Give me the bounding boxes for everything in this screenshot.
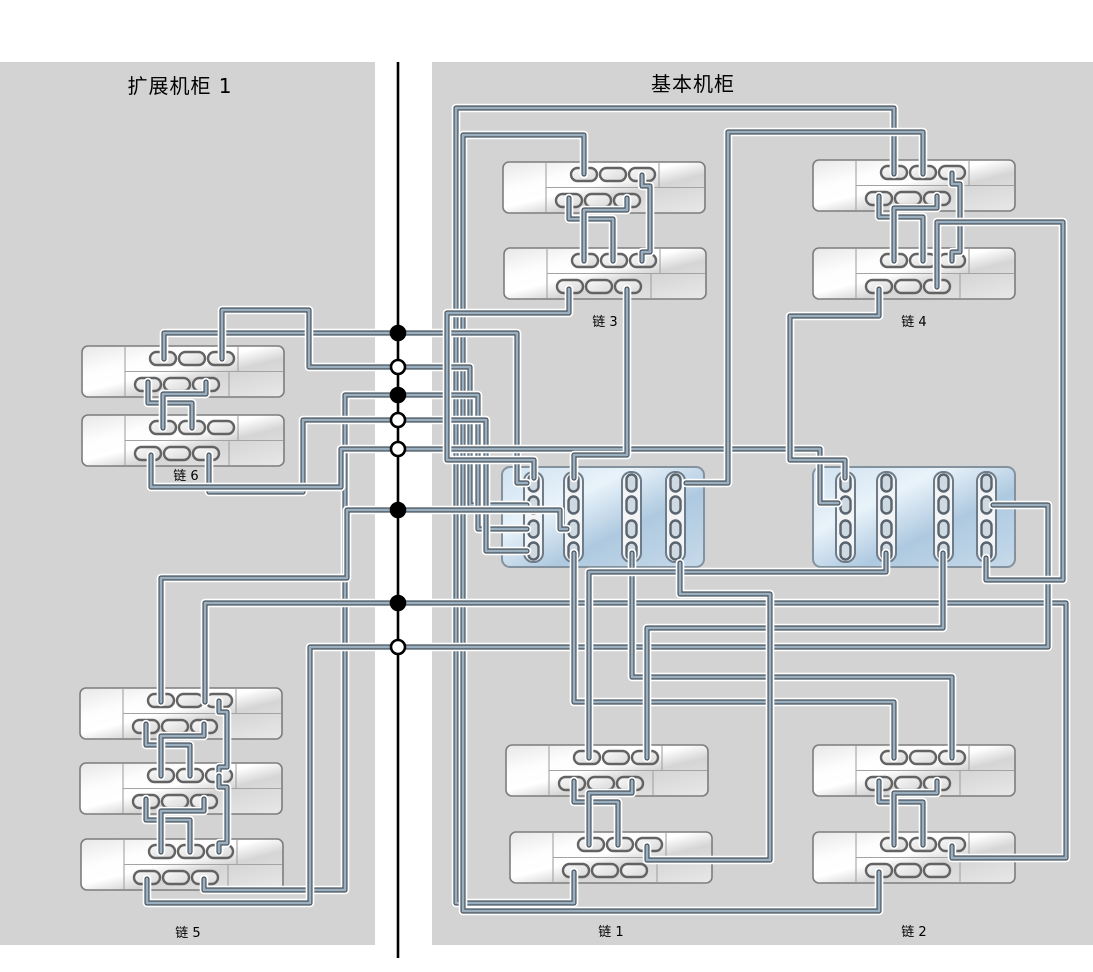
- sas-cable: [574, 553, 894, 758]
- junction-dot-filled: [391, 503, 405, 517]
- shelf-port: [179, 352, 205, 365]
- exp1-shelf-5b: [80, 763, 282, 814]
- chain-5-label: 链 5: [175, 926, 200, 941]
- shelf-port: [895, 280, 921, 293]
- shelf-port: [163, 871, 189, 884]
- hba-port: [841, 543, 851, 560]
- hba-port: [882, 521, 892, 538]
- base-shelf-3a: [503, 162, 705, 213]
- hba-port: [671, 521, 681, 538]
- cabling-diagram: 扩展机柜 1 基本机柜 链 1链 2链 3链 4链 5链 6: [0, 0, 1093, 972]
- chain-4-label: 链 4: [901, 315, 926, 330]
- junction-dot-open: [391, 413, 405, 427]
- shelf-port: [177, 694, 203, 707]
- sas-cable: [647, 563, 770, 860]
- shelf-port: [895, 864, 921, 877]
- shelf-port: [162, 795, 188, 808]
- hba-port: [939, 497, 949, 514]
- controller-left: [502, 467, 704, 567]
- base-shelf-2a: [813, 745, 1015, 796]
- cable-stroke: [574, 553, 894, 758]
- shelf-port: [600, 168, 626, 181]
- shelf-port: [924, 864, 950, 877]
- exp1-shelf-5c: [81, 839, 283, 890]
- cable-stroke: [647, 563, 770, 860]
- cable-stroke: [574, 553, 894, 758]
- exp1-shelf-6a: [82, 346, 284, 397]
- shelf-port: [208, 421, 234, 434]
- sas-cable: [642, 175, 650, 261]
- junction-dot-open: [391, 640, 405, 654]
- exp1-shelf-6b: [82, 415, 284, 466]
- sas-cable: [204, 395, 527, 890]
- hba-port: [627, 521, 637, 538]
- hba-port: [939, 521, 949, 538]
- chain-2-label: 链 2: [901, 925, 926, 940]
- hba-port: [627, 497, 637, 514]
- shelf-port: [603, 751, 629, 764]
- hba-port: [982, 475, 992, 492]
- cable-stroke: [574, 553, 894, 758]
- shelf-port: [164, 447, 190, 460]
- base-shelf-4b: [813, 248, 1015, 299]
- junction-dot-filled: [391, 326, 405, 340]
- shelf-port: [895, 777, 921, 790]
- shelf-port: [162, 720, 188, 733]
- hba-port: [671, 497, 681, 514]
- sas-cable: [647, 553, 943, 758]
- shelf-port: [895, 192, 921, 205]
- junction-dot-filled: [391, 596, 405, 610]
- exp1-shelf-5a: [80, 688, 282, 739]
- hba-port: [982, 521, 992, 538]
- cable-stroke: [647, 553, 943, 758]
- hba-port: [882, 497, 892, 514]
- base-shelf-3b: [504, 248, 706, 299]
- shelf-port: [586, 280, 612, 293]
- base-shelf-1a: [506, 745, 708, 796]
- chain-6-label: 链 6: [173, 469, 198, 484]
- sas-cable: [952, 173, 960, 261]
- cable-stroke: [204, 395, 527, 890]
- junction-dot-open: [391, 360, 405, 374]
- hba-port: [882, 475, 892, 492]
- hba-port: [841, 521, 851, 538]
- cable-stroke: [647, 553, 943, 758]
- hba-port: [939, 475, 949, 492]
- base-shelf-4a: [813, 160, 1015, 211]
- shelf-port: [164, 378, 190, 391]
- chain-1-label: 链 1: [598, 925, 623, 940]
- diagram-canvas: 链 1链 2链 3链 4链 5链 6: [0, 0, 1093, 972]
- shelf-port: [585, 194, 611, 207]
- cable-stroke: [647, 563, 770, 860]
- hba-port: [569, 497, 579, 514]
- hba-port: [841, 497, 851, 514]
- shelf-port: [592, 864, 618, 877]
- hba-port: [671, 475, 681, 492]
- controller-right: [813, 467, 1015, 567]
- chain-3-label: 链 3: [592, 315, 617, 330]
- shelf-port: [588, 777, 614, 790]
- cable-stroke: [647, 553, 943, 758]
- hba-port: [671, 543, 681, 560]
- junction-dot-filled: [391, 388, 405, 402]
- junction-dot-open: [391, 442, 405, 456]
- shelf-port: [621, 864, 647, 877]
- shelf-port: [910, 751, 936, 764]
- hba-port: [627, 475, 637, 492]
- cable-stroke: [647, 563, 770, 860]
